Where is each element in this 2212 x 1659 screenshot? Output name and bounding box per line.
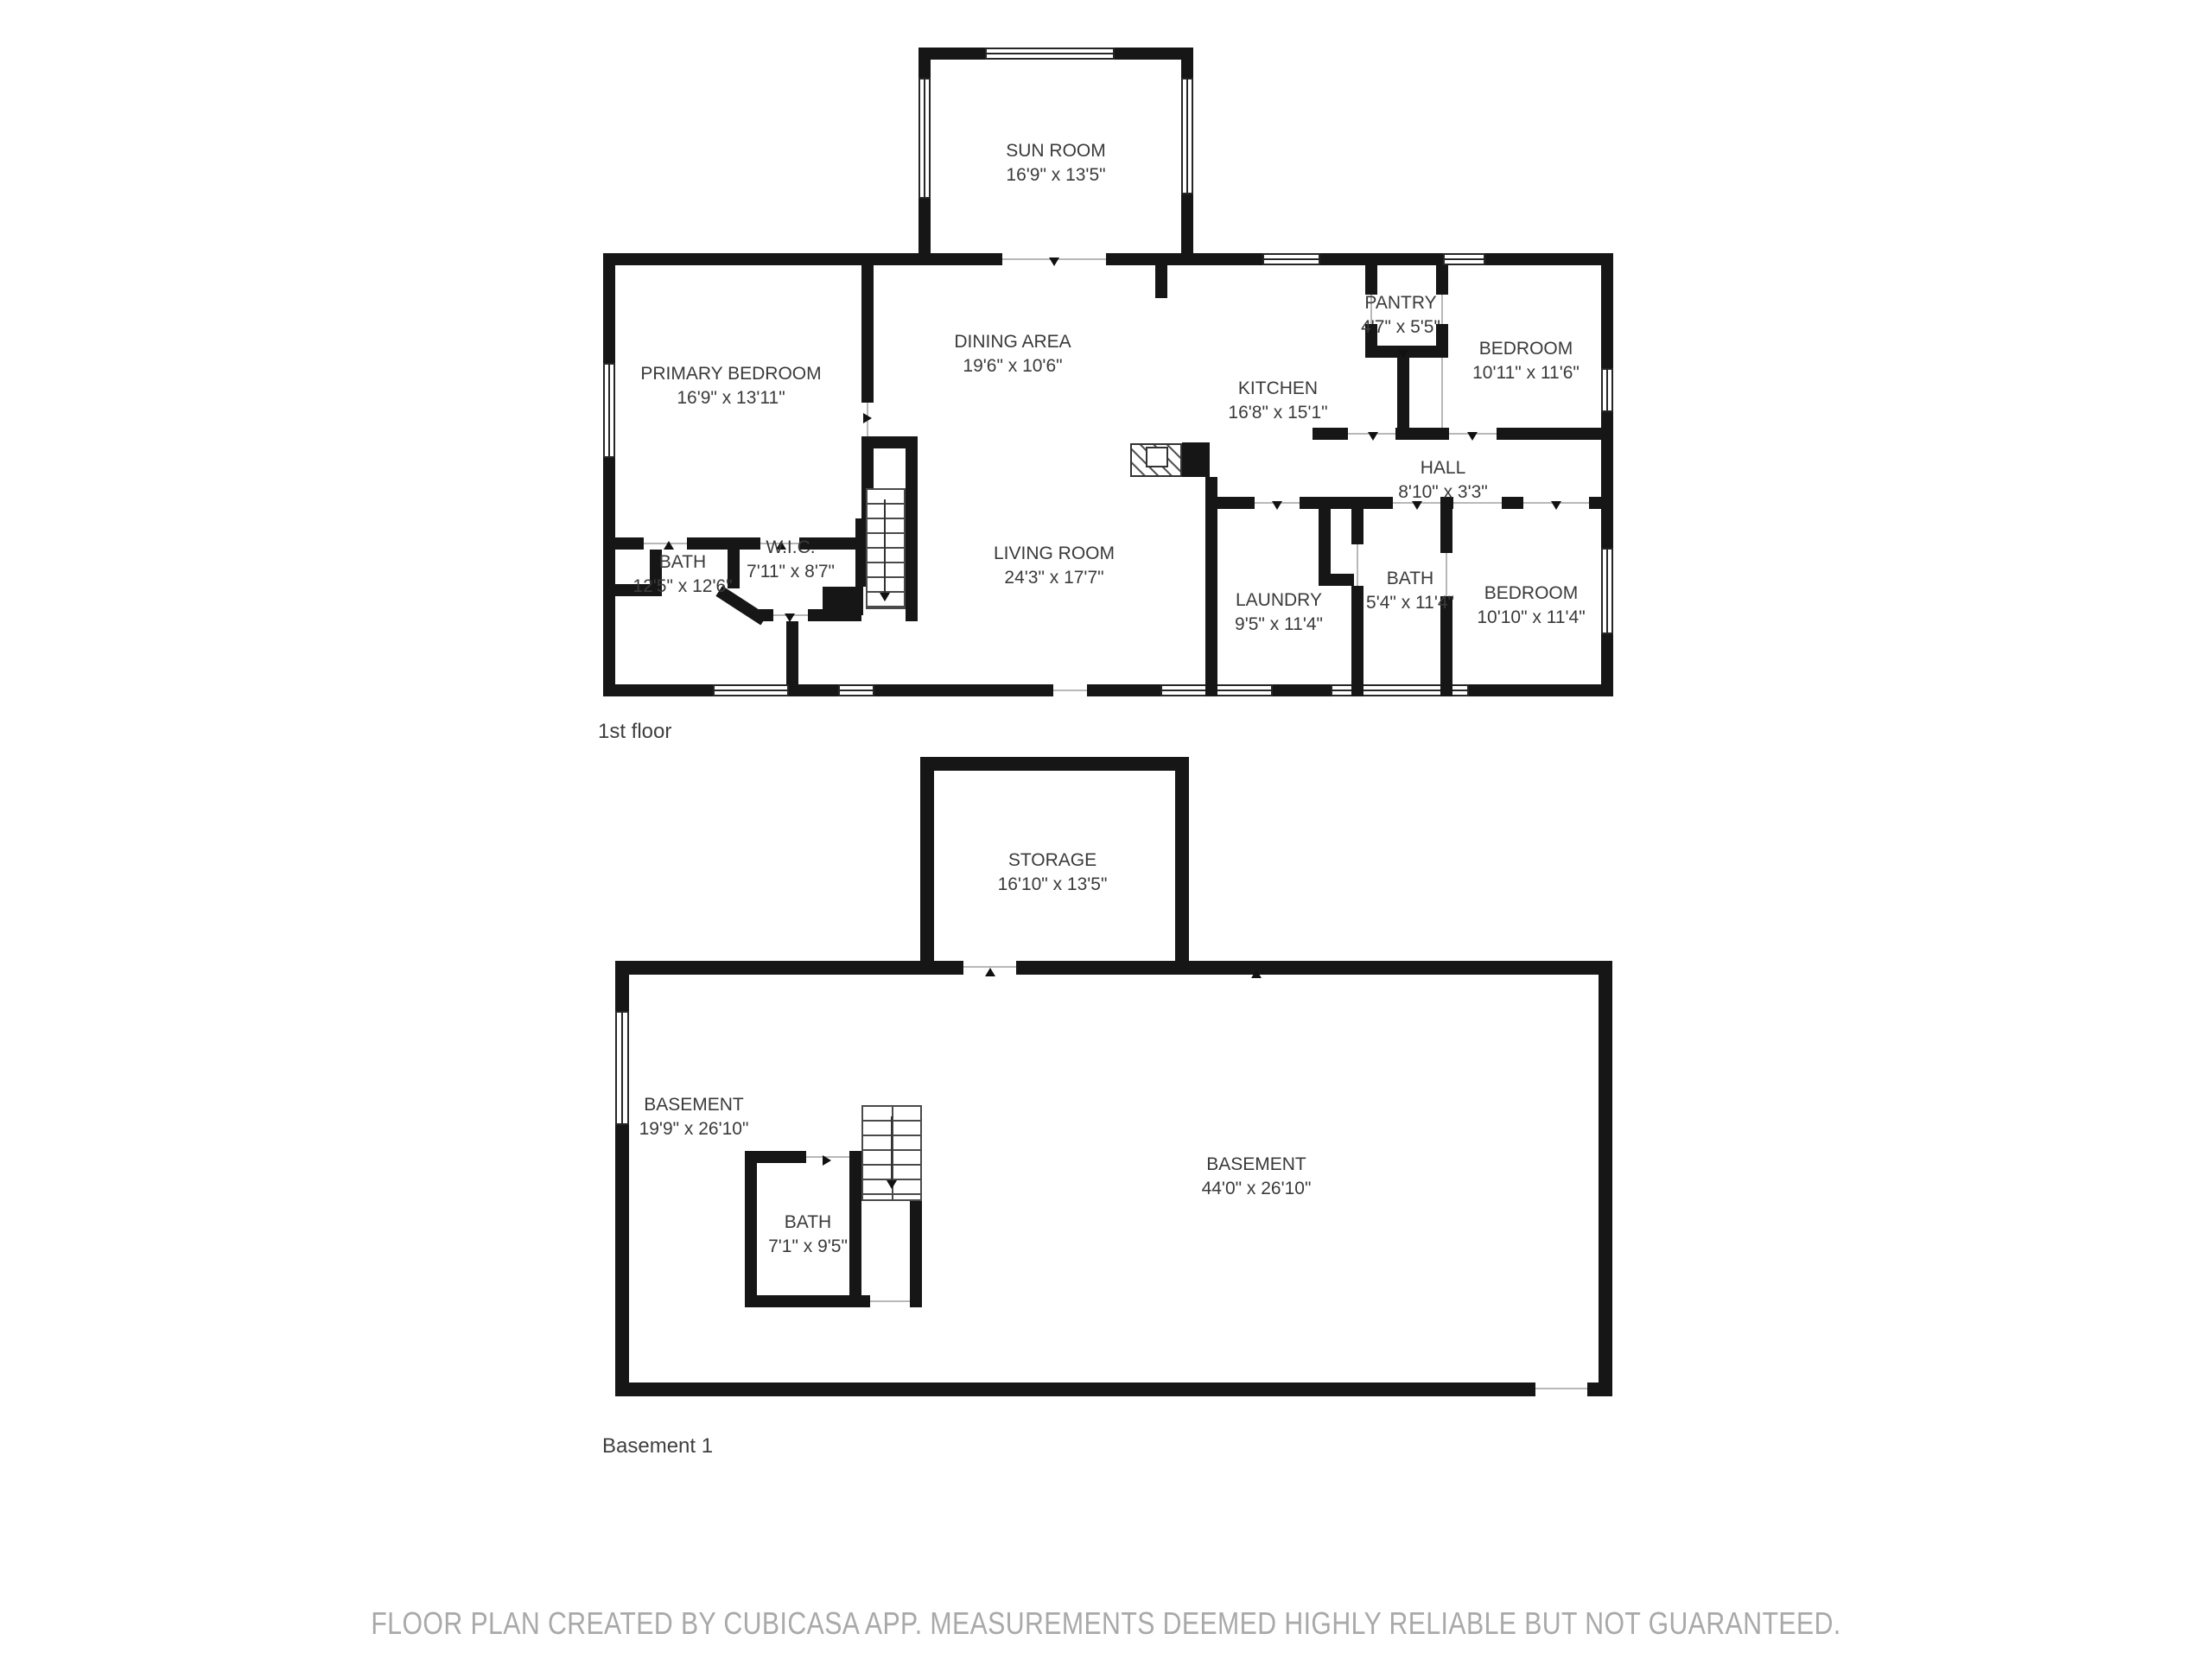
door-swing-icon bbox=[1398, 350, 1408, 359]
room-label-bedroom-se: BEDROOM 10'10" x 11'4" bbox=[1477, 582, 1585, 630]
wall bbox=[745, 1151, 806, 1163]
wall bbox=[1300, 497, 1393, 509]
room-label-kitchen: KITCHEN 16'8" x 15'1" bbox=[1228, 377, 1327, 425]
room-name: SUN ROOM bbox=[1006, 139, 1106, 163]
wall bbox=[1502, 497, 1523, 509]
wall bbox=[1155, 253, 1167, 298]
wall bbox=[759, 609, 773, 621]
footer-disclaimer: FLOOR PLAN CREATED BY CUBICASA APP. MEAS… bbox=[371, 1605, 1840, 1642]
room-label-pantry: PANTRY 4'7" x 5'5" bbox=[1361, 291, 1440, 340]
window bbox=[1262, 253, 1320, 265]
room-dims: 5'4" x 11'4" bbox=[1366, 591, 1454, 615]
window bbox=[1443, 253, 1485, 265]
door-swing-icon bbox=[1368, 432, 1378, 441]
window bbox=[838, 684, 874, 696]
room-dims: 19'9" x 26'10" bbox=[639, 1117, 749, 1141]
room-label-basement-main: BASEMENT 44'0" x 26'10" bbox=[1202, 1153, 1312, 1201]
door-swing-icon bbox=[863, 413, 872, 423]
staircase bbox=[866, 488, 906, 609]
room-dims: 7'1" x 9'5" bbox=[768, 1235, 848, 1259]
wall bbox=[1351, 497, 1363, 544]
door-swing-icon bbox=[985, 968, 995, 976]
window bbox=[1601, 548, 1613, 634]
window bbox=[1181, 78, 1193, 194]
room-label-bath-right: BATH 5'4" x 11'4" bbox=[1366, 567, 1454, 615]
window bbox=[713, 684, 789, 696]
wall bbox=[920, 757, 1189, 771]
wall bbox=[849, 1151, 861, 1307]
floor-plan: SUN ROOM 16'9" x 13'5" PRIMARY BEDROOM 1… bbox=[0, 0, 2212, 1659]
door-threshold bbox=[870, 1300, 910, 1302]
door-threshold bbox=[1357, 544, 1358, 586]
wall bbox=[931, 253, 1002, 265]
door-swing-icon bbox=[1251, 969, 1262, 978]
door-swing-icon bbox=[785, 613, 795, 622]
room-dims: 10'11" x 11'6" bbox=[1472, 361, 1580, 385]
window bbox=[918, 78, 931, 199]
wall bbox=[1497, 428, 1601, 440]
room-dims: 7'11" x 8'7" bbox=[747, 560, 835, 584]
door-swing-icon bbox=[1049, 257, 1059, 266]
window bbox=[1601, 368, 1613, 412]
room-dims: 16'9" x 13'11" bbox=[640, 386, 821, 410]
door-swing-icon bbox=[1551, 501, 1561, 510]
room-name: PRIMARY BEDROOM bbox=[640, 362, 821, 386]
room-dims: 44'0" x 26'10" bbox=[1202, 1177, 1312, 1201]
room-dims: 8'10" x 3'3" bbox=[1398, 480, 1488, 505]
room-name: KITCHEN bbox=[1228, 377, 1327, 401]
door-swing-icon bbox=[823, 1155, 831, 1166]
wall bbox=[906, 436, 918, 621]
room-name: LAUNDRY bbox=[1235, 588, 1323, 613]
stairs-down-arrow-icon bbox=[891, 1116, 893, 1182]
stairs-down-arrow-icon bbox=[884, 499, 886, 593]
wall bbox=[1193, 253, 1613, 265]
wall bbox=[1016, 961, 1189, 975]
room-label-dining-area: DINING AREA 19'6" x 10'6" bbox=[954, 330, 1071, 378]
stairs-down-arrow-icon bbox=[880, 593, 890, 601]
wall bbox=[861, 253, 874, 403]
room-name: BATH bbox=[1366, 567, 1454, 591]
room-label-wic: W.I.C. 7'11" x 8'7" bbox=[747, 536, 835, 584]
room-dims: 4'7" x 5'5" bbox=[1361, 315, 1440, 340]
door-swing-icon bbox=[1272, 501, 1282, 510]
wall bbox=[1365, 265, 1377, 295]
window bbox=[985, 48, 1115, 60]
wall bbox=[615, 1382, 1535, 1396]
room-label-basement-left: BASEMENT 19'9" x 26'10" bbox=[639, 1093, 749, 1141]
room-dims: 12'5" x 12'6" bbox=[632, 575, 732, 599]
room-dims: 10'10" x 11'4" bbox=[1477, 606, 1585, 630]
wall bbox=[1175, 757, 1189, 975]
room-name: PANTRY bbox=[1361, 291, 1440, 315]
room-label-laundry: LAUNDRY 9'5" x 11'4" bbox=[1235, 588, 1323, 637]
room-dims: 19'6" x 10'6" bbox=[954, 354, 1071, 378]
floor-label-1st-floor: 1st floor bbox=[598, 720, 671, 744]
window bbox=[615, 1011, 629, 1125]
room-name: W.I.C. bbox=[747, 536, 835, 560]
wall bbox=[920, 757, 934, 975]
wall bbox=[745, 1151, 757, 1307]
room-label-primary-bedroom: PRIMARY BEDROOM 16'9" x 13'11" bbox=[640, 362, 821, 410]
wall bbox=[1599, 961, 1612, 1396]
room-dims: 9'5" x 11'4" bbox=[1235, 613, 1323, 637]
window bbox=[603, 363, 615, 458]
chimney-block bbox=[1182, 442, 1210, 477]
wall bbox=[1440, 509, 1452, 553]
room-dims: 16'9" x 13'5" bbox=[1006, 163, 1106, 188]
room-name: BATH bbox=[768, 1211, 848, 1235]
room-name: LIVING ROOM bbox=[994, 542, 1115, 566]
wall bbox=[1205, 497, 1255, 509]
room-label-basement-bath: BATH 7'1" x 9'5" bbox=[768, 1211, 848, 1259]
room-name: BASEMENT bbox=[1202, 1153, 1312, 1177]
wall bbox=[849, 1295, 870, 1307]
room-label-hall: HALL 8'10" x 3'3" bbox=[1398, 456, 1488, 505]
room-dims: 16'10" x 13'5" bbox=[998, 873, 1108, 897]
wall bbox=[786, 621, 798, 684]
wall bbox=[1436, 265, 1448, 295]
door-swing-icon bbox=[1467, 432, 1478, 441]
wall bbox=[1587, 1382, 1612, 1396]
room-name: BASEMENT bbox=[639, 1093, 749, 1117]
wall bbox=[1205, 477, 1217, 696]
room-dims: 24'3" x 17'7" bbox=[994, 566, 1115, 590]
room-name: BEDROOM bbox=[1472, 337, 1580, 361]
chimney-block bbox=[823, 587, 863, 615]
room-dims: 16'8" x 15'1" bbox=[1228, 401, 1327, 425]
wall-line bbox=[1441, 358, 1443, 428]
wall bbox=[603, 253, 931, 265]
wall bbox=[1589, 497, 1613, 509]
stairs-down-arrow-icon bbox=[887, 1180, 897, 1189]
room-name: DINING AREA bbox=[954, 330, 1071, 354]
room-name: STORAGE bbox=[998, 849, 1108, 873]
room-name: BEDROOM bbox=[1477, 582, 1585, 606]
fireplace-icon bbox=[1146, 447, 1168, 467]
wall bbox=[920, 961, 963, 975]
wall bbox=[745, 1295, 861, 1307]
door-threshold bbox=[1535, 1388, 1587, 1389]
room-label-bedroom-ne: BEDROOM 10'11" x 11'6" bbox=[1472, 337, 1580, 385]
wall bbox=[615, 537, 644, 550]
door-swing-icon bbox=[664, 541, 674, 550]
wall bbox=[1319, 574, 1354, 586]
room-label-storage: STORAGE 16'10" x 13'5" bbox=[998, 849, 1108, 897]
wall bbox=[1106, 253, 1193, 265]
door-threshold bbox=[1053, 690, 1087, 691]
wall bbox=[1397, 358, 1409, 440]
room-name: HALL bbox=[1398, 456, 1488, 480]
wall bbox=[1313, 428, 1348, 440]
wall bbox=[615, 961, 920, 975]
room-label-living-room: LIVING ROOM 24'3" x 17'7" bbox=[994, 542, 1115, 590]
floor-label-basement-1: Basement 1 bbox=[602, 1434, 713, 1459]
room-label-bath-left: BATH 12'5" x 12'6" bbox=[632, 550, 732, 599]
room-name: BATH bbox=[632, 550, 732, 575]
door-threshold bbox=[1441, 295, 1443, 324]
wall bbox=[603, 253, 615, 696]
wall bbox=[1351, 586, 1363, 696]
room-label-sun-room: SUN ROOM 16'9" x 13'5" bbox=[1006, 139, 1106, 188]
